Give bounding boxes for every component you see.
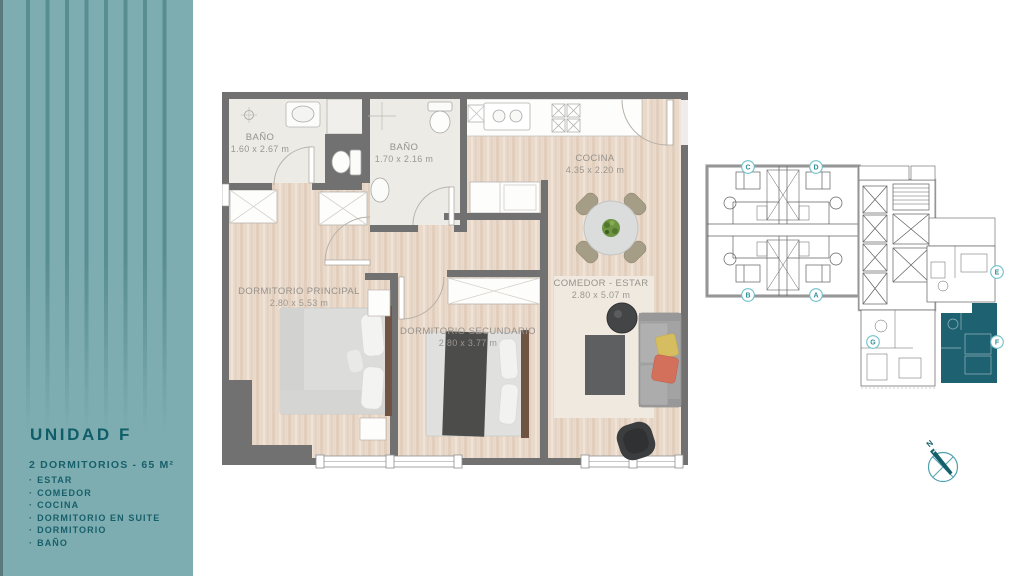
door-leaf	[449, 187, 454, 225]
unit-badge-b: B	[745, 293, 750, 300]
feature-label: COMEDOR	[37, 488, 92, 498]
room-label-bano-2: BAÑO 1.70 x 2.16 m	[375, 142, 433, 164]
compass: N	[918, 440, 968, 490]
desk	[368, 290, 390, 316]
room-label-comedor-estar: COMEDOR - ESTAR 2.80 x 5.07 m	[553, 278, 648, 300]
plant	[602, 219, 620, 237]
unit-title: UNIDAD F	[30, 425, 132, 445]
door-leaf	[325, 260, 370, 265]
side-table	[607, 303, 637, 333]
tv-stand	[585, 335, 625, 395]
entry-door-leaf	[667, 100, 673, 145]
pillow	[360, 313, 385, 357]
room-label-bano-1: BAÑO 1.60 x 2.67 m	[231, 132, 289, 154]
floor-plan: BAÑO 1.60 x 2.67 m BAÑO 1.70 x 2.16 m CO…	[222, 92, 688, 472]
keyplan-unit-g	[861, 310, 935, 388]
feature-label: COCINA	[37, 500, 79, 510]
feature-label: BAÑO	[37, 538, 68, 548]
headboard	[385, 306, 392, 416]
kitchen-appliances	[470, 182, 540, 213]
sidebar: UNIDAD F 2 DORMITORIOS - 65 M² ·ESTAR ·C…	[0, 0, 193, 576]
feature-label: DORMITORIO EN SUITE	[37, 513, 160, 523]
unit-badge-f: F	[995, 340, 1000, 347]
bullet: ·	[29, 538, 33, 548]
door-leaf	[309, 147, 314, 183]
keyplan-unit-f-highlight	[941, 303, 997, 383]
keyplan-unit-e	[927, 218, 995, 302]
unit-subtitle: 2 DORMITORIOS - 65 M²	[29, 459, 174, 471]
dining-set	[574, 191, 649, 266]
room-label-dormitorio-principal: DORMITORIO PRINCIPAL 2.80 x 5.53 m	[238, 286, 360, 308]
north-label: N	[925, 440, 935, 449]
pillow	[498, 383, 518, 424]
kitchen-sink	[484, 103, 530, 130]
unit-badge-e: E	[995, 270, 1000, 277]
feature-item: ·ESTAR	[29, 474, 160, 487]
key-plan-svg: C D B A E G F	[703, 158, 1005, 398]
nightstand	[360, 418, 386, 440]
feature-item: ·BAÑO	[29, 537, 160, 550]
left-window	[222, 184, 229, 206]
feature-list: ·ESTAR ·COMEDOR ·COCINA ·DORMITORIO EN S…	[29, 474, 160, 550]
unit-badge-d: D	[813, 165, 818, 172]
room-label-cocina: COCINA 4.35 x 2.20 m	[566, 153, 624, 175]
unit-badge-g: G	[870, 340, 876, 347]
feature-item: ·DORMITORIO EN SUITE	[29, 512, 160, 525]
sofa	[639, 313, 681, 407]
elevator-shafts	[863, 186, 887, 304]
bullet: ·	[29, 500, 33, 510]
keyplan-left-block	[707, 166, 859, 296]
toilet-bowl	[332, 151, 350, 173]
room-label-dormitorio-secundario: DORMITORIO SECUNDARIO 2.80 x 3.77 m	[400, 326, 536, 348]
decorative-stripes	[26, 0, 178, 445]
feature-item: ·DORMITORIO	[29, 524, 160, 537]
feature-item: ·COMEDOR	[29, 487, 160, 500]
brochure-page: UNIDAD F 2 DORMITORIOS - 65 M² ·ESTAR ·C…	[0, 0, 1024, 576]
feature-item: ·COCINA	[29, 499, 160, 512]
bullet: ·	[29, 475, 33, 485]
door-leaf	[399, 277, 404, 319]
toilet-tank	[428, 102, 452, 111]
unit-badge-a: A	[813, 293, 818, 300]
red-pillow	[651, 354, 679, 384]
toilet-tank	[350, 150, 361, 175]
entry-opening	[681, 100, 688, 145]
bullet: ·	[29, 525, 33, 535]
bullet: ·	[29, 513, 33, 523]
sink	[371, 178, 389, 202]
toilet-bowl	[430, 111, 450, 133]
unit-badge-c: C	[745, 165, 750, 172]
feature-label: ESTAR	[37, 475, 72, 485]
key-plan: C D B A E G F	[703, 158, 1005, 398]
stairs	[893, 184, 929, 210]
keyplan-core	[859, 166, 935, 310]
feature-label: DORMITORIO	[37, 525, 106, 535]
bullet: ·	[29, 488, 33, 498]
pillow	[361, 366, 385, 409]
north-arrow-icon: N	[918, 440, 968, 490]
